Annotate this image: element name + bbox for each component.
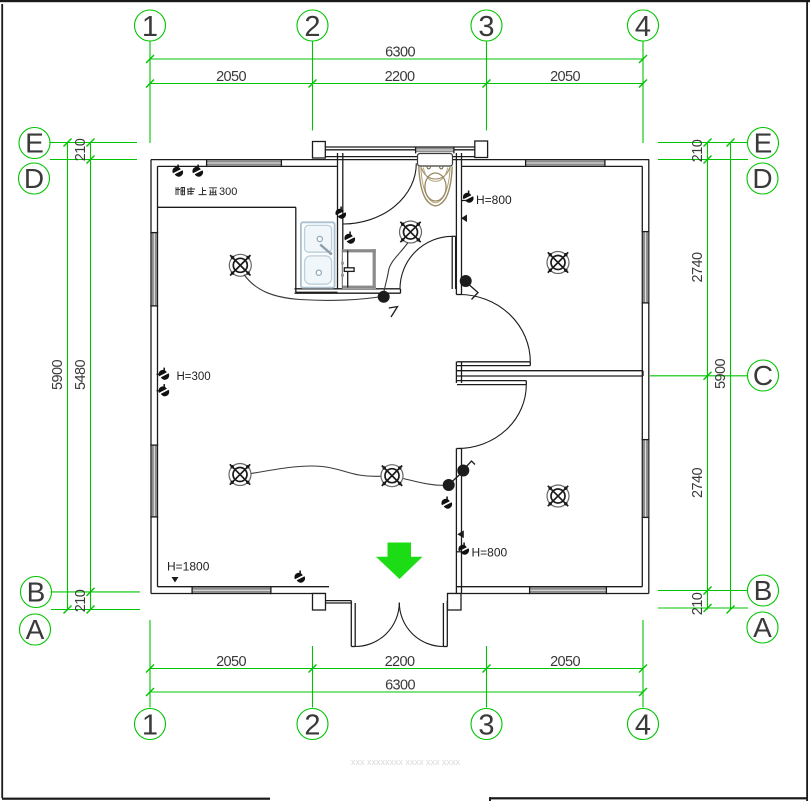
svg-text:2200: 2200 xyxy=(385,654,415,670)
svg-text:210: 210 xyxy=(690,139,706,162)
svg-text:5480: 5480 xyxy=(73,360,89,390)
svg-text:210: 210 xyxy=(73,589,89,612)
svg-text:6300: 6300 xyxy=(385,45,415,61)
svg-text:2050: 2050 xyxy=(550,69,580,85)
svg-text:210: 210 xyxy=(73,138,89,161)
svg-text:3: 3 xyxy=(478,11,494,43)
svg-text:xxx xxxxxxxx xxxx xxx xxxx: xxx xxxxxxxx xxxx xxx xxxx xyxy=(351,757,461,767)
svg-text:6300: 6300 xyxy=(385,678,415,694)
svg-text:E: E xyxy=(25,128,44,159)
svg-text:A: A xyxy=(753,612,772,643)
svg-text:H=1800: H=1800 xyxy=(167,560,210,574)
svg-text:B: B xyxy=(754,575,773,606)
svg-text:4: 4 xyxy=(635,11,651,43)
svg-text:2050: 2050 xyxy=(550,654,580,670)
svg-text:2740: 2740 xyxy=(690,252,706,282)
svg-text:B: B xyxy=(27,577,46,608)
svg-text:A: A xyxy=(26,614,45,645)
svg-text:D: D xyxy=(24,163,44,194)
svg-text:H=800: H=800 xyxy=(476,193,512,207)
svg-text:2050: 2050 xyxy=(216,69,246,85)
svg-text:2050: 2050 xyxy=(216,654,246,670)
svg-text:3: 3 xyxy=(478,710,494,742)
svg-text:1: 1 xyxy=(142,710,158,742)
svg-text:4: 4 xyxy=(635,710,651,742)
svg-text:1: 1 xyxy=(142,11,158,43)
svg-text:5900: 5900 xyxy=(50,360,66,390)
svg-text:E: E xyxy=(754,128,773,159)
svg-text:D: D xyxy=(752,163,772,194)
svg-text:2: 2 xyxy=(304,710,320,742)
svg-text:2: 2 xyxy=(304,11,320,43)
svg-text:C: C xyxy=(753,360,773,391)
svg-text:2200: 2200 xyxy=(385,69,415,85)
svg-text:5900: 5900 xyxy=(713,359,729,389)
svg-text:2740: 2740 xyxy=(690,468,706,498)
svg-text:H=300: H=300 xyxy=(177,371,211,383)
svg-text:H=800: H=800 xyxy=(472,546,508,560)
svg-text:300: 300 xyxy=(219,186,237,198)
svg-text:210: 210 xyxy=(690,592,706,615)
